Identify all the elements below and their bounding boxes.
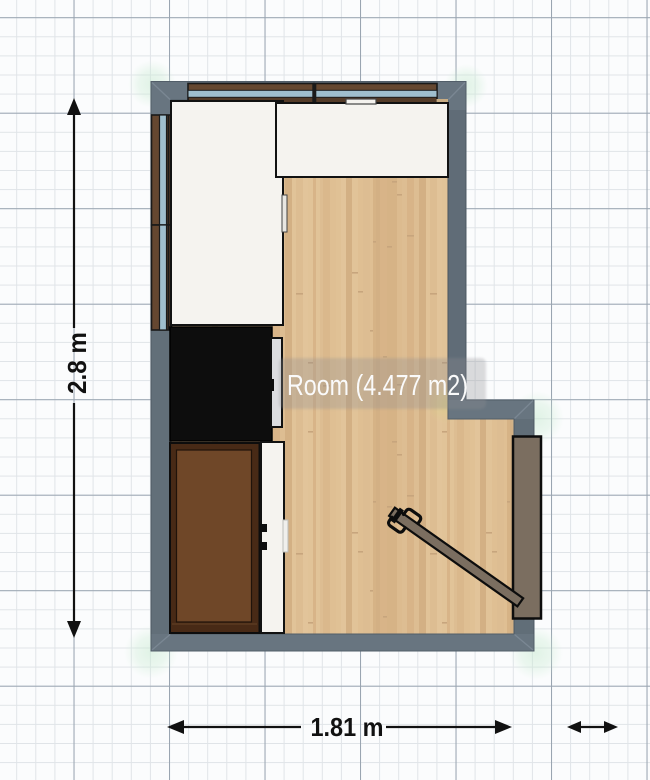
svg-text:Room (4.477 m2): Room (4.477 m2) bbox=[287, 370, 468, 402]
svg-text:2.8 m: 2.8 m bbox=[62, 332, 92, 394]
svg-text:1.81 m: 1.81 m bbox=[311, 712, 384, 742]
